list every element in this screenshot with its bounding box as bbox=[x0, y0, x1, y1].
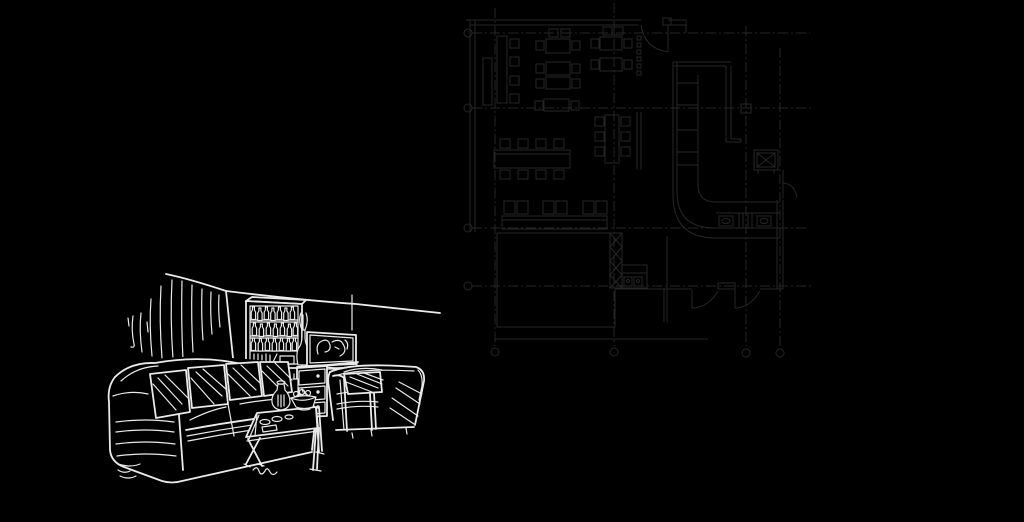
scene-svg bbox=[0, 0, 1024, 522]
living-room-sketch bbox=[108, 274, 440, 483]
canvas bbox=[0, 0, 1024, 522]
grid-axes bbox=[472, 3, 812, 346]
shaft-box-x bbox=[754, 150, 778, 174]
dining-furniture bbox=[483, 27, 641, 229]
kitchen-appliances bbox=[622, 265, 647, 288]
armchair bbox=[328, 365, 424, 438]
entry-door bbox=[641, 18, 671, 52]
hatched-wall bbox=[610, 233, 622, 288]
signature-scribble bbox=[253, 468, 277, 475]
floor-plan bbox=[464, 3, 812, 357]
